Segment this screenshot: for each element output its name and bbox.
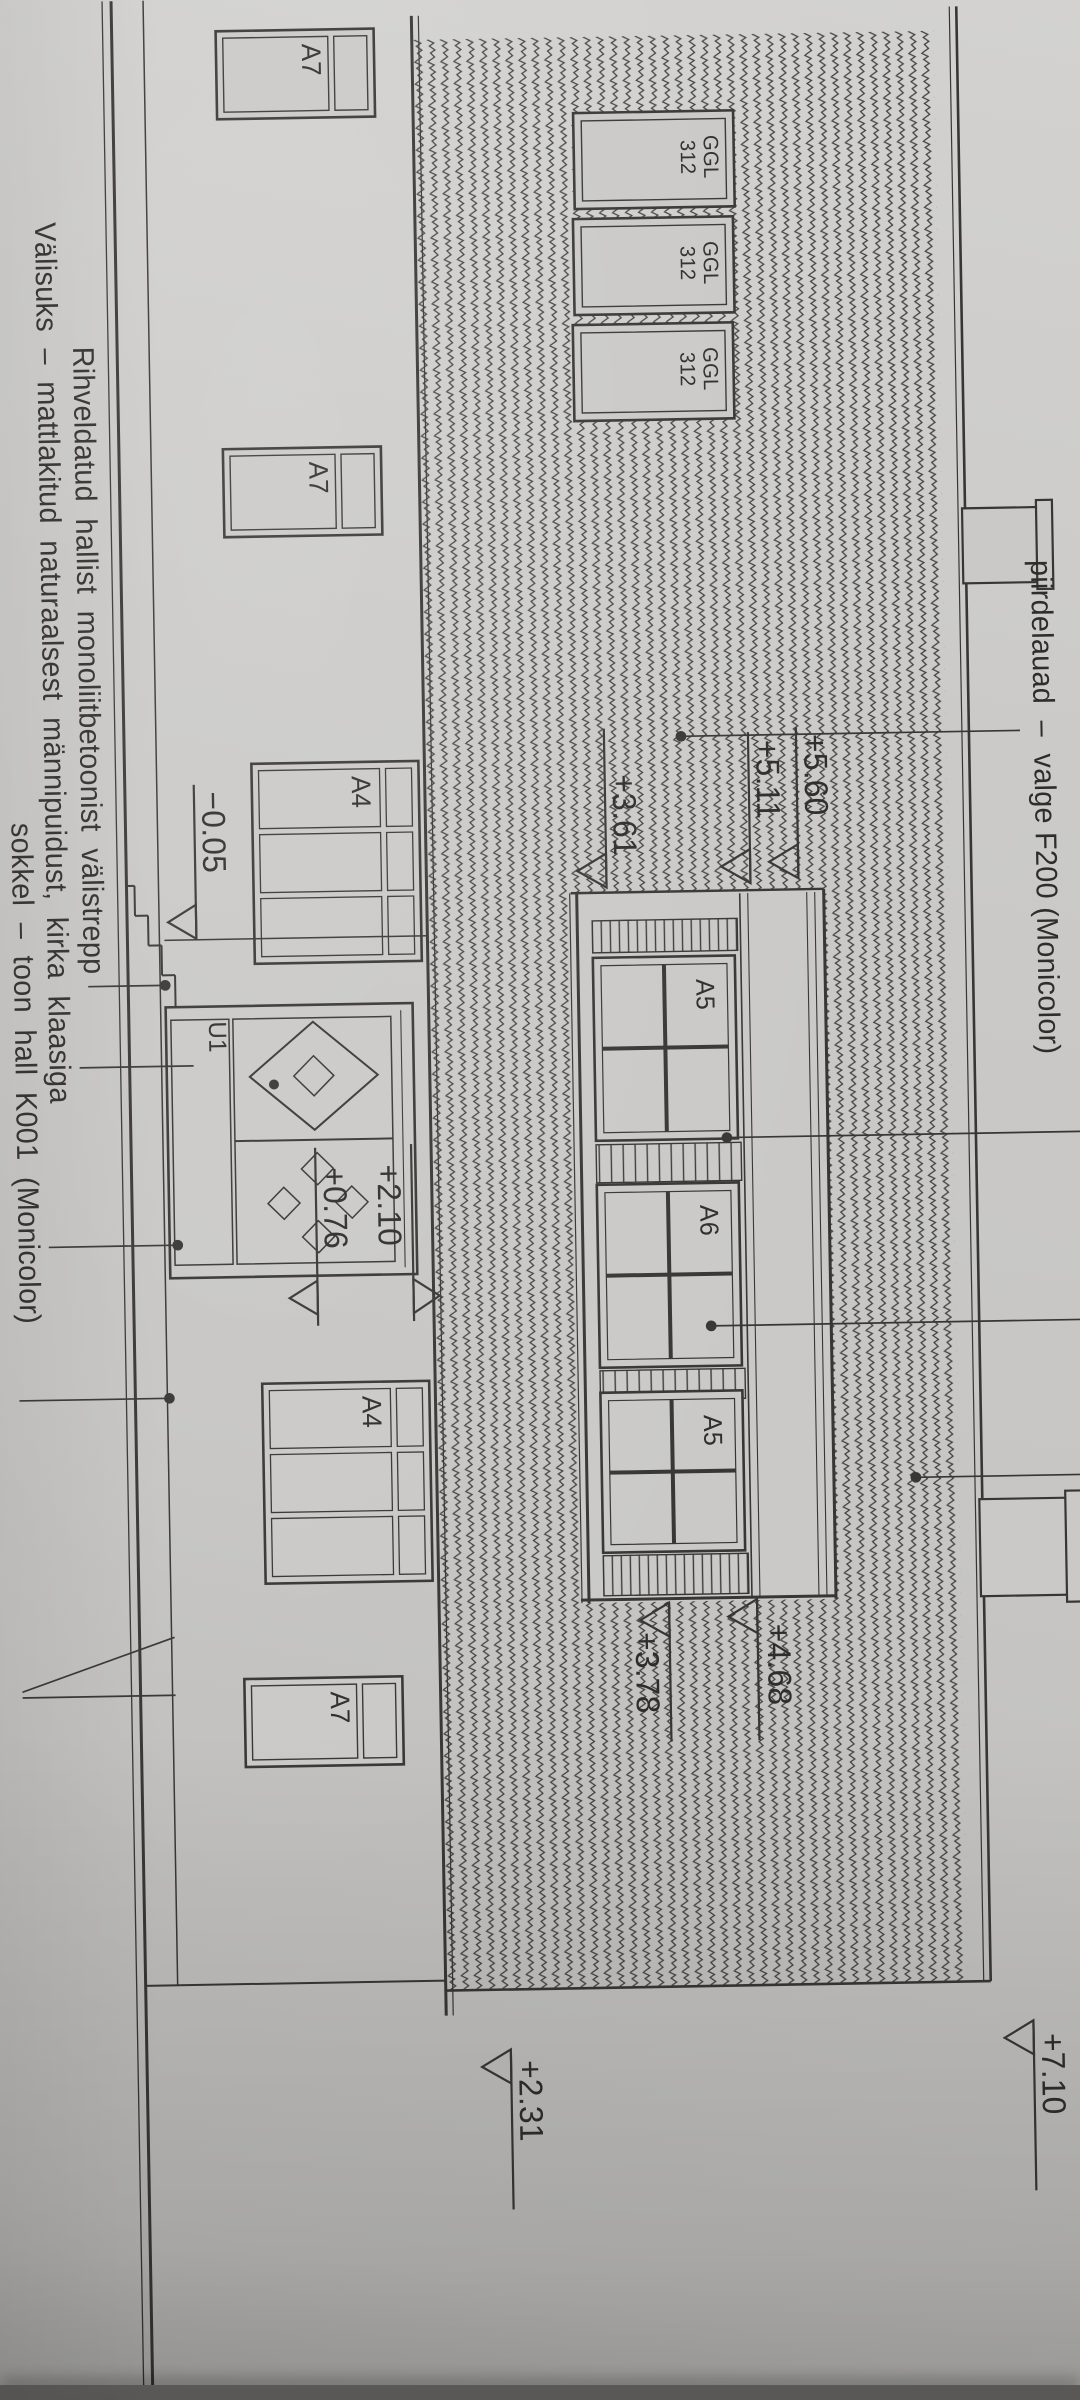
- dormer-end-panel-right: [603, 1553, 749, 1596]
- roof-window-label-1a: GGL: [698, 111, 723, 204]
- plinth-top-line: [143, 1, 178, 1986]
- roof-window-label-2a: GGL: [698, 217, 723, 310]
- photo-of-elevation-drawing: piirdelauad – valge F200 (Monicolor) Rih…: [0, 0, 1080, 2400]
- elevation-mark-right-eave: +2.31: [511, 2060, 550, 2142]
- drawing-tilt-wrapper: piirdelauad – valge F200 (Monicolor) Rih…: [0, 0, 1080, 2400]
- leader-cutoff-4: [19, 1398, 169, 1401]
- paper-sheet: piirdelauad – valge F200 (Monicolor) Rih…: [0, 0, 1080, 2400]
- elevation-mark-dormer-sill-right: +3.78: [628, 1632, 667, 1714]
- leader-cutoff-6: [20, 1637, 176, 1693]
- elevation-mark-ground: −0.05: [194, 791, 233, 873]
- elevation-mark-dormer-eave-left: +5.11: [748, 739, 787, 819]
- ground-line: [111, 1, 153, 2389]
- window-label-a4-2: A4: [355, 1396, 387, 1429]
- window-label-a7-2: A7: [302, 461, 334, 494]
- door-label-u1: U1: [202, 1021, 232, 1053]
- dormer-end-panel-left: [592, 918, 738, 953]
- elevation-mark-dormer-sill-left: +3.61: [605, 774, 644, 856]
- window-label-a5-left: A5: [689, 979, 721, 1011]
- window-label-a4-1: A4: [345, 776, 377, 809]
- window-label-a7-3: A7: [324, 1691, 356, 1724]
- leader-stairs-note: [88, 985, 165, 986]
- roof-window-label-2b: 312: [675, 217, 700, 310]
- window-label-a7-1: A7: [295, 43, 327, 76]
- leader-plinth-note: [49, 1245, 178, 1247]
- roof-window-label-3b: 312: [675, 323, 700, 416]
- elevation-mark-ridge: +7.10: [1034, 2033, 1073, 2115]
- dormer-mullion-strip-1: [596, 1142, 742, 1183]
- leader-cutoff-5: [21, 1695, 176, 1698]
- roof-window-label-3a: GGL: [698, 323, 723, 416]
- terrain-line: [102, 1, 144, 2389]
- window-label-a5-right: A5: [697, 1415, 729, 1447]
- roof-window-label-1b: 312: [675, 111, 700, 204]
- wall-right-edge: [146, 1981, 446, 1986]
- window-label-a6: A6: [693, 1205, 725, 1237]
- window-a4-2: [262, 1381, 432, 1584]
- window-a4-1: [251, 761, 421, 964]
- elevation-mark-dormer-top-right: +4.68: [759, 1623, 798, 1705]
- elevation-drawing: [0, 0, 1080, 2400]
- chimney-right: [979, 1490, 1080, 1603]
- photo-edge-shadow: [0, 2385, 1080, 2400]
- elevation-mark-landing: +0.76: [315, 1167, 354, 1249]
- elevation-mark-dormer-top-left: +5.60: [796, 734, 835, 816]
- elevation-mark-door-head: +2.10: [369, 1164, 408, 1246]
